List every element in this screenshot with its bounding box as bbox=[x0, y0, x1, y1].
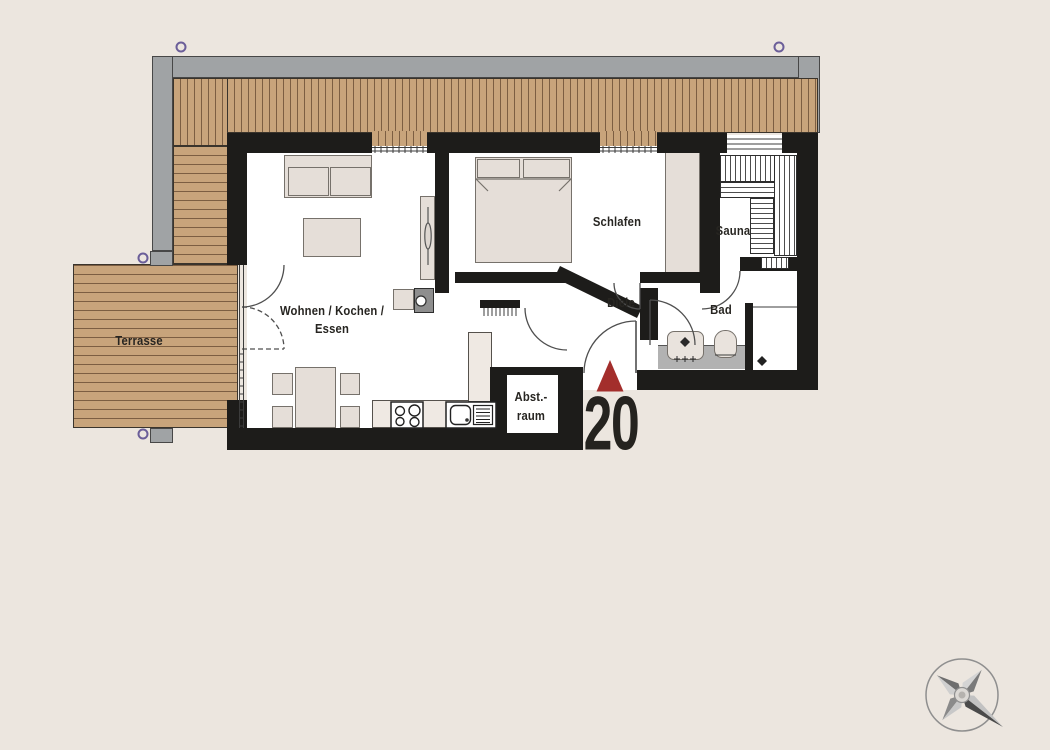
wall-storage-left bbox=[490, 375, 507, 450]
dining-chair bbox=[340, 406, 360, 428]
sauna-bench bbox=[720, 155, 776, 182]
exterior-wall-top bbox=[427, 133, 600, 153]
balcony-deck bbox=[227, 78, 818, 133]
wall-bedroom-hall bbox=[455, 272, 565, 283]
floor-plan: Terrasse Wohnen / Kochen / Essen Schlafe… bbox=[0, 0, 1050, 750]
sauna-window bbox=[727, 135, 782, 153]
eaves-band-left bbox=[152, 56, 173, 251]
bedroom-window bbox=[600, 146, 657, 153]
room-label-storage: Abst.- raum bbox=[515, 388, 548, 426]
room-label-bedroom: Schlafen bbox=[593, 215, 641, 229]
shower-floor bbox=[750, 300, 797, 370]
marker-circle-icon bbox=[139, 430, 148, 439]
balcony-deck-left-strip bbox=[173, 146, 228, 264]
sauna-bench bbox=[720, 182, 776, 198]
marker-circle-icon bbox=[775, 43, 784, 52]
wall-bedroom-sauna bbox=[700, 153, 720, 293]
exterior-wall-bottom bbox=[227, 428, 507, 450]
balcony-deck-corner bbox=[173, 78, 228, 146]
wall-storage-top bbox=[490, 367, 558, 375]
kitchen-counter-side bbox=[468, 332, 492, 402]
room-label-living: Wohnen / Kochen / Essen bbox=[280, 302, 384, 338]
pillow bbox=[523, 159, 570, 178]
sofa-cushion bbox=[330, 167, 371, 196]
wall-bath-bottom bbox=[637, 370, 818, 390]
sauna-bench bbox=[750, 198, 774, 254]
room-label-terrasse: Terrasse bbox=[115, 334, 163, 348]
wall-stub-radiator bbox=[480, 300, 520, 308]
deck-window-patch bbox=[372, 131, 427, 146]
unit-number: 20 bbox=[584, 381, 639, 468]
wardrobe bbox=[665, 152, 700, 274]
stove-unit bbox=[414, 288, 434, 313]
wall-hall-bath bbox=[640, 288, 658, 340]
terrace-post bbox=[150, 251, 173, 266]
dining-table bbox=[295, 367, 336, 428]
coffee-table bbox=[303, 218, 361, 257]
wall-bedroom-hall bbox=[640, 272, 702, 283]
wall-storage-right bbox=[558, 367, 583, 450]
terrace-post bbox=[150, 428, 173, 443]
tv-sideboard bbox=[420, 196, 435, 280]
wall-storage-bottom bbox=[507, 433, 558, 450]
toilet bbox=[714, 330, 737, 358]
washbasin bbox=[667, 331, 704, 360]
marker-circle-icon bbox=[177, 43, 186, 52]
exterior-wall-left bbox=[227, 133, 247, 265]
compass-rose-icon bbox=[917, 650, 1023, 750]
deck-window-patch bbox=[600, 131, 657, 146]
dining-chair bbox=[272, 373, 293, 395]
dining-chair bbox=[272, 406, 293, 428]
room-label-bathroom: Bad bbox=[710, 303, 732, 317]
exterior-wall-right bbox=[797, 133, 818, 390]
exterior-wall-top bbox=[657, 133, 727, 153]
pillow bbox=[477, 159, 520, 178]
dining-chair bbox=[340, 373, 360, 395]
eaves-band-top bbox=[152, 56, 820, 78]
living-window bbox=[372, 146, 427, 153]
room-label-sauna: Sauna bbox=[716, 224, 751, 238]
kitchen-tall-unit bbox=[393, 289, 414, 310]
wall-shower-partition bbox=[745, 303, 753, 370]
exterior-wall-top bbox=[227, 133, 372, 153]
kitchen-counter bbox=[372, 400, 507, 428]
wall-living-bedroom bbox=[435, 153, 449, 293]
sauna-bench bbox=[774, 155, 797, 256]
marker-circle-icon bbox=[139, 254, 148, 263]
room-label-hallway: Diele bbox=[607, 296, 635, 310]
sauna-heater bbox=[761, 257, 789, 269]
sofa-cushion bbox=[288, 167, 329, 196]
